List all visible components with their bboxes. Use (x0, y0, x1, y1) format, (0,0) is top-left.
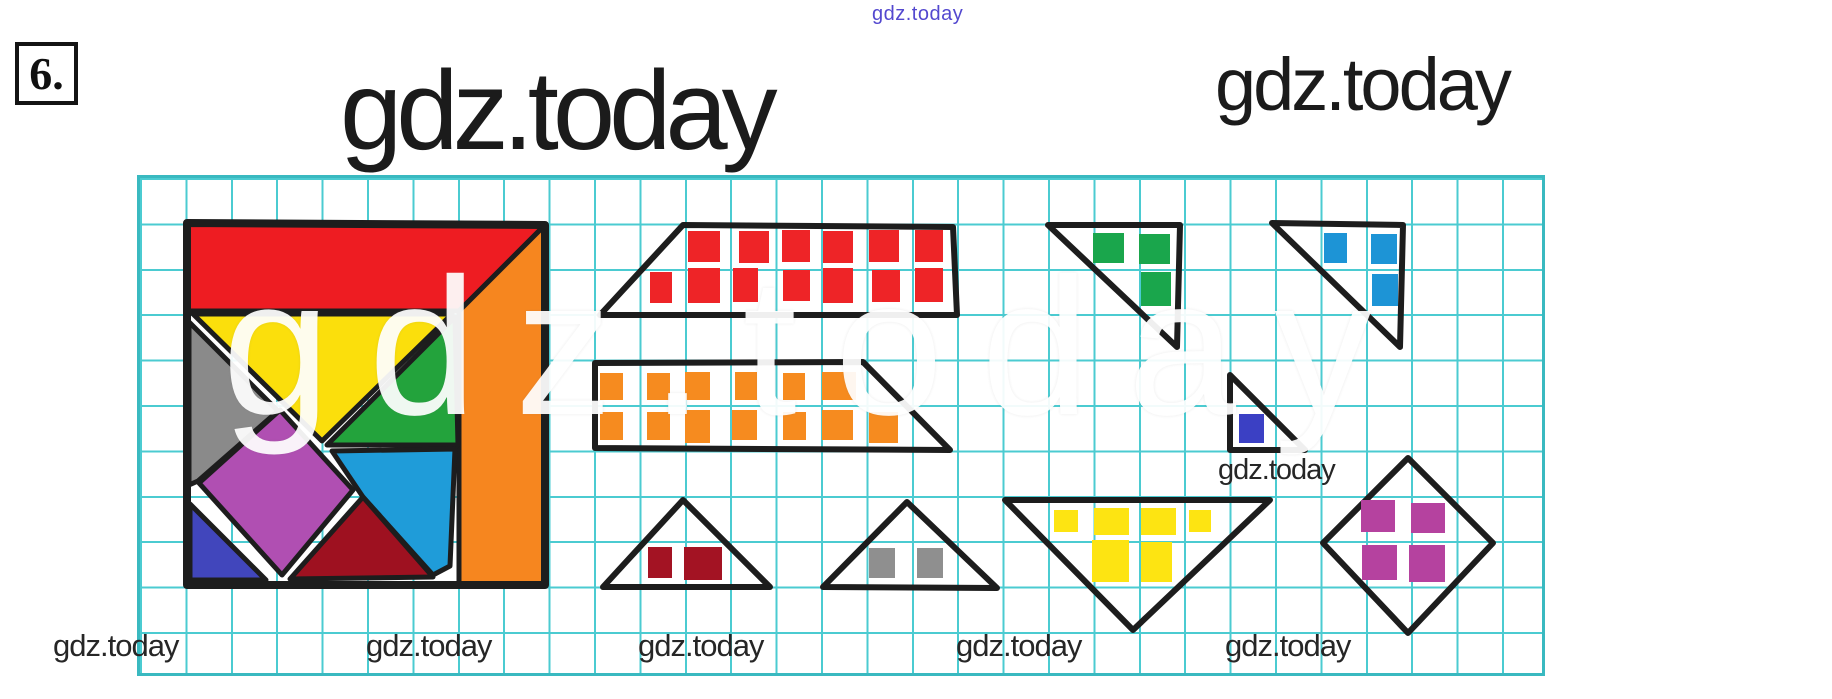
watermark-bottom-3: gdz.today (638, 630, 763, 661)
unit-square (1141, 542, 1172, 582)
unit-square (1094, 508, 1129, 535)
triangle-gray-units-outline (823, 502, 997, 588)
unit-square (869, 548, 895, 578)
unit-square (1409, 545, 1445, 582)
unit-square (684, 547, 722, 580)
triangle-yellow-units-outline (1005, 500, 1270, 630)
watermark-bottom-2: gdz.today (366, 630, 491, 661)
watermark-top: gdz.today (872, 4, 963, 24)
unit-square (1054, 510, 1078, 532)
diamond-magenta-units-outline (1323, 458, 1493, 633)
problem-number: 6. (29, 47, 64, 100)
triangle-darkred-units (603, 500, 770, 587)
unit-square (1092, 540, 1129, 582)
watermark-bottom-1: gdz.today (53, 630, 178, 661)
watermark-mid: gdz.today (1218, 456, 1335, 485)
site-title-main: gdz.today (340, 55, 772, 167)
unit-square (1361, 500, 1395, 532)
unit-square (917, 548, 943, 578)
unit-square (1141, 508, 1176, 535)
triangle-yellow-units (1005, 500, 1270, 630)
watermark-bottom-4: gdz.today (956, 630, 1081, 661)
problem-number-box: 6. (15, 42, 78, 105)
watermark-bottom-5: gdz.today (1225, 630, 1350, 661)
unit-square (648, 547, 672, 578)
unit-square (1362, 545, 1397, 580)
worksheet-canvas: gdz.today 6. gdz.today gdz.today gdz.tod… (0, 0, 1832, 699)
site-title-right: gdz.today (1215, 48, 1509, 122)
triangle-gray-units (823, 502, 997, 588)
diamond-magenta-units (1323, 458, 1493, 633)
unit-square (1411, 503, 1445, 533)
unit-square (1189, 510, 1211, 532)
big-white-watermark: gdz.today (222, 250, 1410, 445)
